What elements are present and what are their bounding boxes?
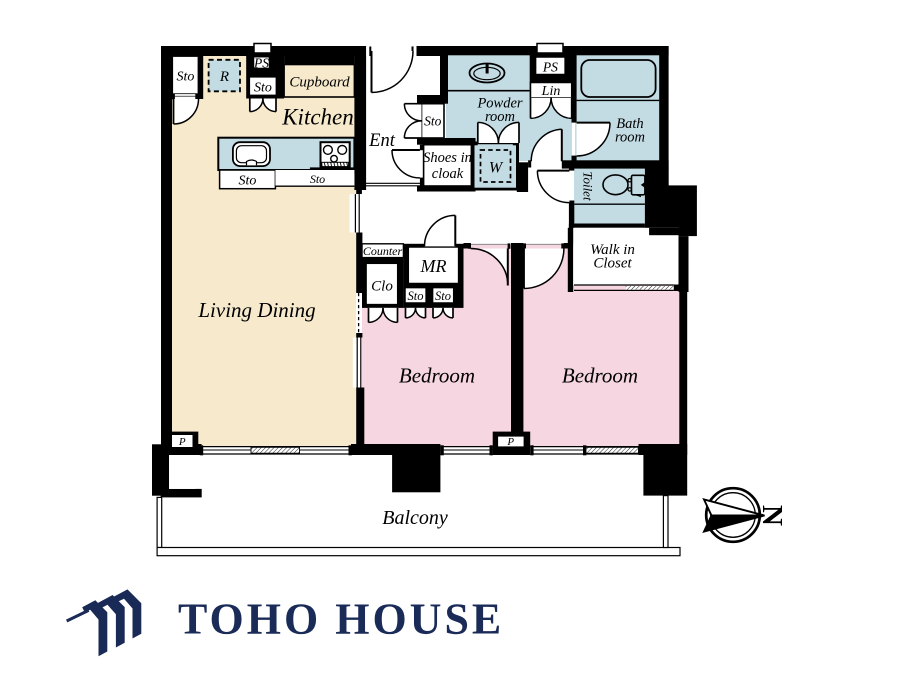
- svg-text:N: N: [756, 505, 788, 526]
- svg-text:PS: PS: [253, 55, 269, 70]
- svg-text:Sto: Sto: [177, 70, 195, 85]
- svg-text:Bedroom: Bedroom: [562, 364, 638, 388]
- svg-text:Shoes in: Shoes in: [423, 150, 472, 166]
- svg-text:Sto: Sto: [310, 172, 325, 186]
- svg-text:Toilet: Toilet: [581, 171, 596, 201]
- svg-text:Sto: Sto: [424, 114, 442, 129]
- svg-text:P: P: [506, 436, 514, 448]
- svg-text:Cupboard: Cupboard: [289, 75, 350, 91]
- svg-text:Balcony: Balcony: [382, 507, 448, 529]
- svg-text:room: room: [615, 130, 645, 146]
- svg-text:MR: MR: [420, 256, 447, 276]
- svg-text:Clo: Clo: [371, 279, 393, 295]
- svg-text:Ent: Ent: [368, 131, 396, 151]
- svg-text:R: R: [219, 69, 229, 85]
- svg-text:Sto: Sto: [254, 81, 272, 96]
- svg-text:Lin: Lin: [541, 84, 561, 99]
- svg-text:cloak: cloak: [432, 166, 464, 182]
- svg-text:Living Dining: Living Dining: [197, 298, 315, 322]
- svg-text:Closet: Closet: [593, 256, 632, 272]
- svg-text:room: room: [485, 109, 515, 125]
- svg-text:Sto: Sto: [435, 289, 451, 303]
- svg-text:P: P: [178, 436, 186, 448]
- svg-text:TOHO HOUSE: TOHO HOUSE: [178, 595, 504, 644]
- svg-text:Sto: Sto: [239, 174, 257, 189]
- svg-text:W: W: [489, 160, 504, 177]
- svg-text:Counter: Counter: [363, 244, 403, 258]
- svg-text:PS: PS: [542, 60, 558, 75]
- svg-text:Sto: Sto: [408, 289, 424, 303]
- svg-text:Bedroom: Bedroom: [399, 364, 475, 388]
- svg-text:Kitchen: Kitchen: [281, 105, 354, 130]
